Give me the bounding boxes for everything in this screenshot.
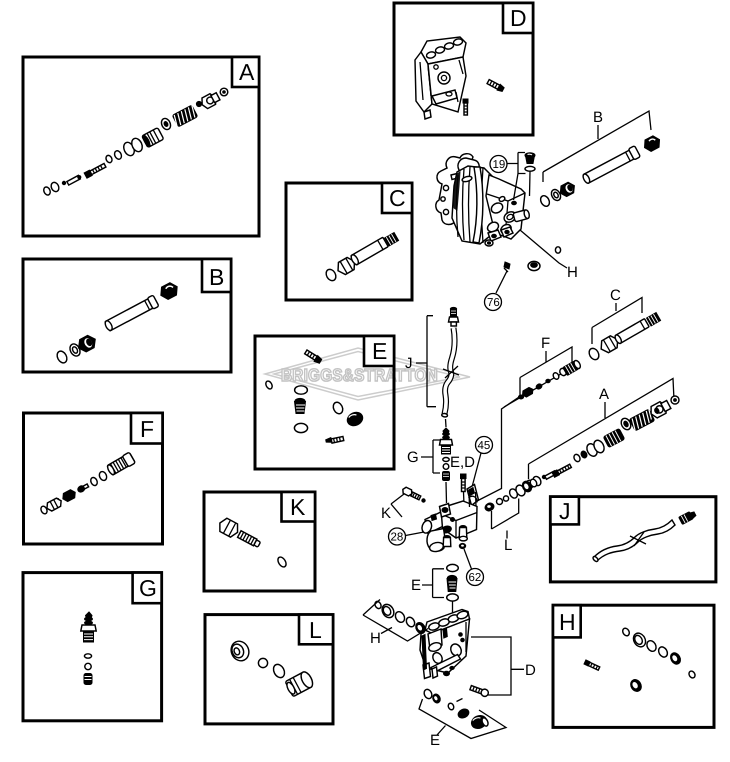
svg-text:E: E [430, 732, 440, 749]
svg-text:D: D [510, 5, 527, 31]
svg-text:K: K [381, 505, 391, 522]
svg-text:J: J [559, 498, 571, 524]
svg-text:28: 28 [391, 532, 404, 544]
svg-text:B: B [593, 109, 603, 126]
svg-text:H: H [559, 609, 576, 635]
svg-text:62: 62 [469, 572, 482, 584]
svg-text:C: C [610, 287, 621, 304]
svg-text:F: F [541, 335, 550, 352]
svg-text:H: H [370, 630, 381, 647]
svg-text:B: B [209, 264, 224, 290]
svg-text:C: C [389, 185, 406, 211]
svg-text:19: 19 [493, 159, 506, 171]
svg-text:L: L [504, 537, 512, 554]
svg-text:D: D [525, 662, 536, 679]
svg-text:BRIGGS&STRATTON: BRIGGS&STRATTON [281, 365, 438, 385]
svg-text:F: F [140, 416, 154, 442]
svg-text:L: L [309, 617, 322, 643]
svg-text:E: E [372, 338, 387, 364]
svg-text:45: 45 [478, 440, 491, 452]
svg-text:E,D: E,D [450, 454, 475, 471]
svg-text:A: A [599, 386, 609, 403]
svg-text:G: G [407, 449, 419, 466]
svg-text:76: 76 [487, 297, 500, 309]
svg-text:J: J [405, 355, 413, 372]
svg-text:G: G [139, 575, 157, 601]
svg-text:K: K [290, 494, 306, 520]
svg-text:H: H [567, 264, 578, 281]
svg-text:E: E [411, 577, 421, 594]
svg-text:A: A [239, 59, 255, 85]
